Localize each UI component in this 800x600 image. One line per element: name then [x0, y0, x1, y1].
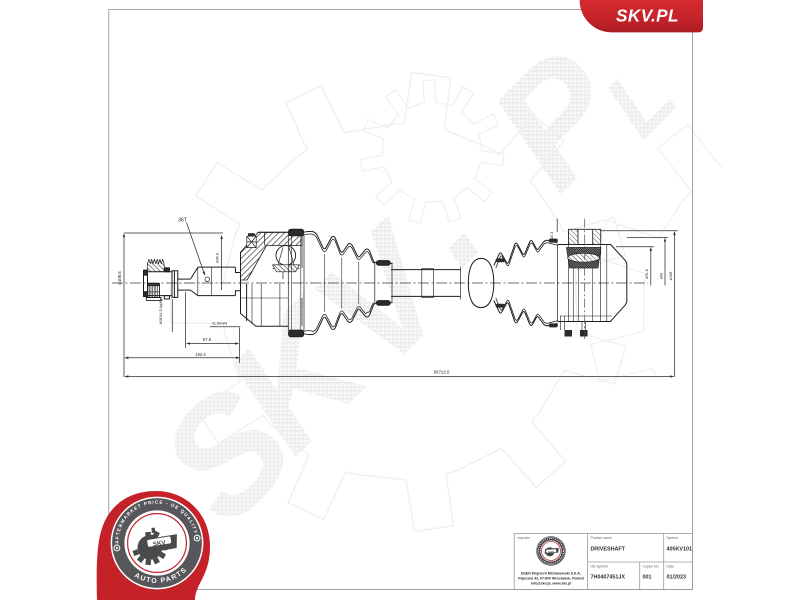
svg-text:7H0407451JX: 7H0407451JX — [591, 575, 626, 581]
svg-text:57.5: 57.5 — [203, 337, 212, 342]
svg-text:OE Symbol: OE Symbol — [591, 565, 608, 569]
svg-text:667±2.0: 667±2.0 — [434, 370, 450, 375]
svg-text:ø10.3: ø10.3 — [550, 232, 554, 241]
svg-text:102.4: 102.4 — [195, 352, 206, 357]
svg-text:M30X1.5-6g/6g: M30X1.5-6g/6g — [159, 299, 163, 324]
svg-text:Date: Date — [667, 565, 674, 569]
svg-text:ø96.9: ø96.9 — [214, 252, 219, 263]
svg-text:36T: 36T — [178, 218, 188, 224]
svg-text:SKV: SKV — [548, 550, 554, 554]
svg-text:405KV101: 405KV101 — [667, 547, 692, 553]
svg-text:Importer: Importer — [518, 536, 531, 540]
svg-text:Pajeczna 43, 07-800 Wroclawek,: Pajeczna 43, 07-800 Wroclawek, Poland — [518, 577, 584, 581]
svg-text:info@skv.pl, www.skv.pl: info@skv.pl, www.skv.pl — [531, 582, 571, 586]
svg-text:Symbol: Symbol — [667, 536, 679, 540]
svg-text:ø90: ø90 — [659, 273, 663, 280]
svg-text:001: 001 — [643, 575, 652, 581]
svg-text:ø108: ø108 — [669, 272, 673, 281]
svg-text:ø51.6: ø51.6 — [645, 269, 649, 279]
svg-text:Copies No:: Copies No: — [643, 565, 660, 569]
svg-text:ø106.6: ø106.6 — [117, 271, 122, 285]
svg-text:SKV.PL: SKV.PL — [616, 6, 679, 26]
svg-text:Product name: Product name — [591, 536, 612, 540]
svg-text:01/2023: 01/2023 — [667, 575, 687, 581]
svg-text:DRIVESHAFT: DRIVESHAFT — [591, 547, 626, 553]
svg-text:11.5mxN: 11.5mxN — [212, 321, 227, 326]
svg-text:ESEN Wojciech Michanowski S.K.: ESEN Wojciech Michanowski S.K.A. — [521, 572, 581, 576]
